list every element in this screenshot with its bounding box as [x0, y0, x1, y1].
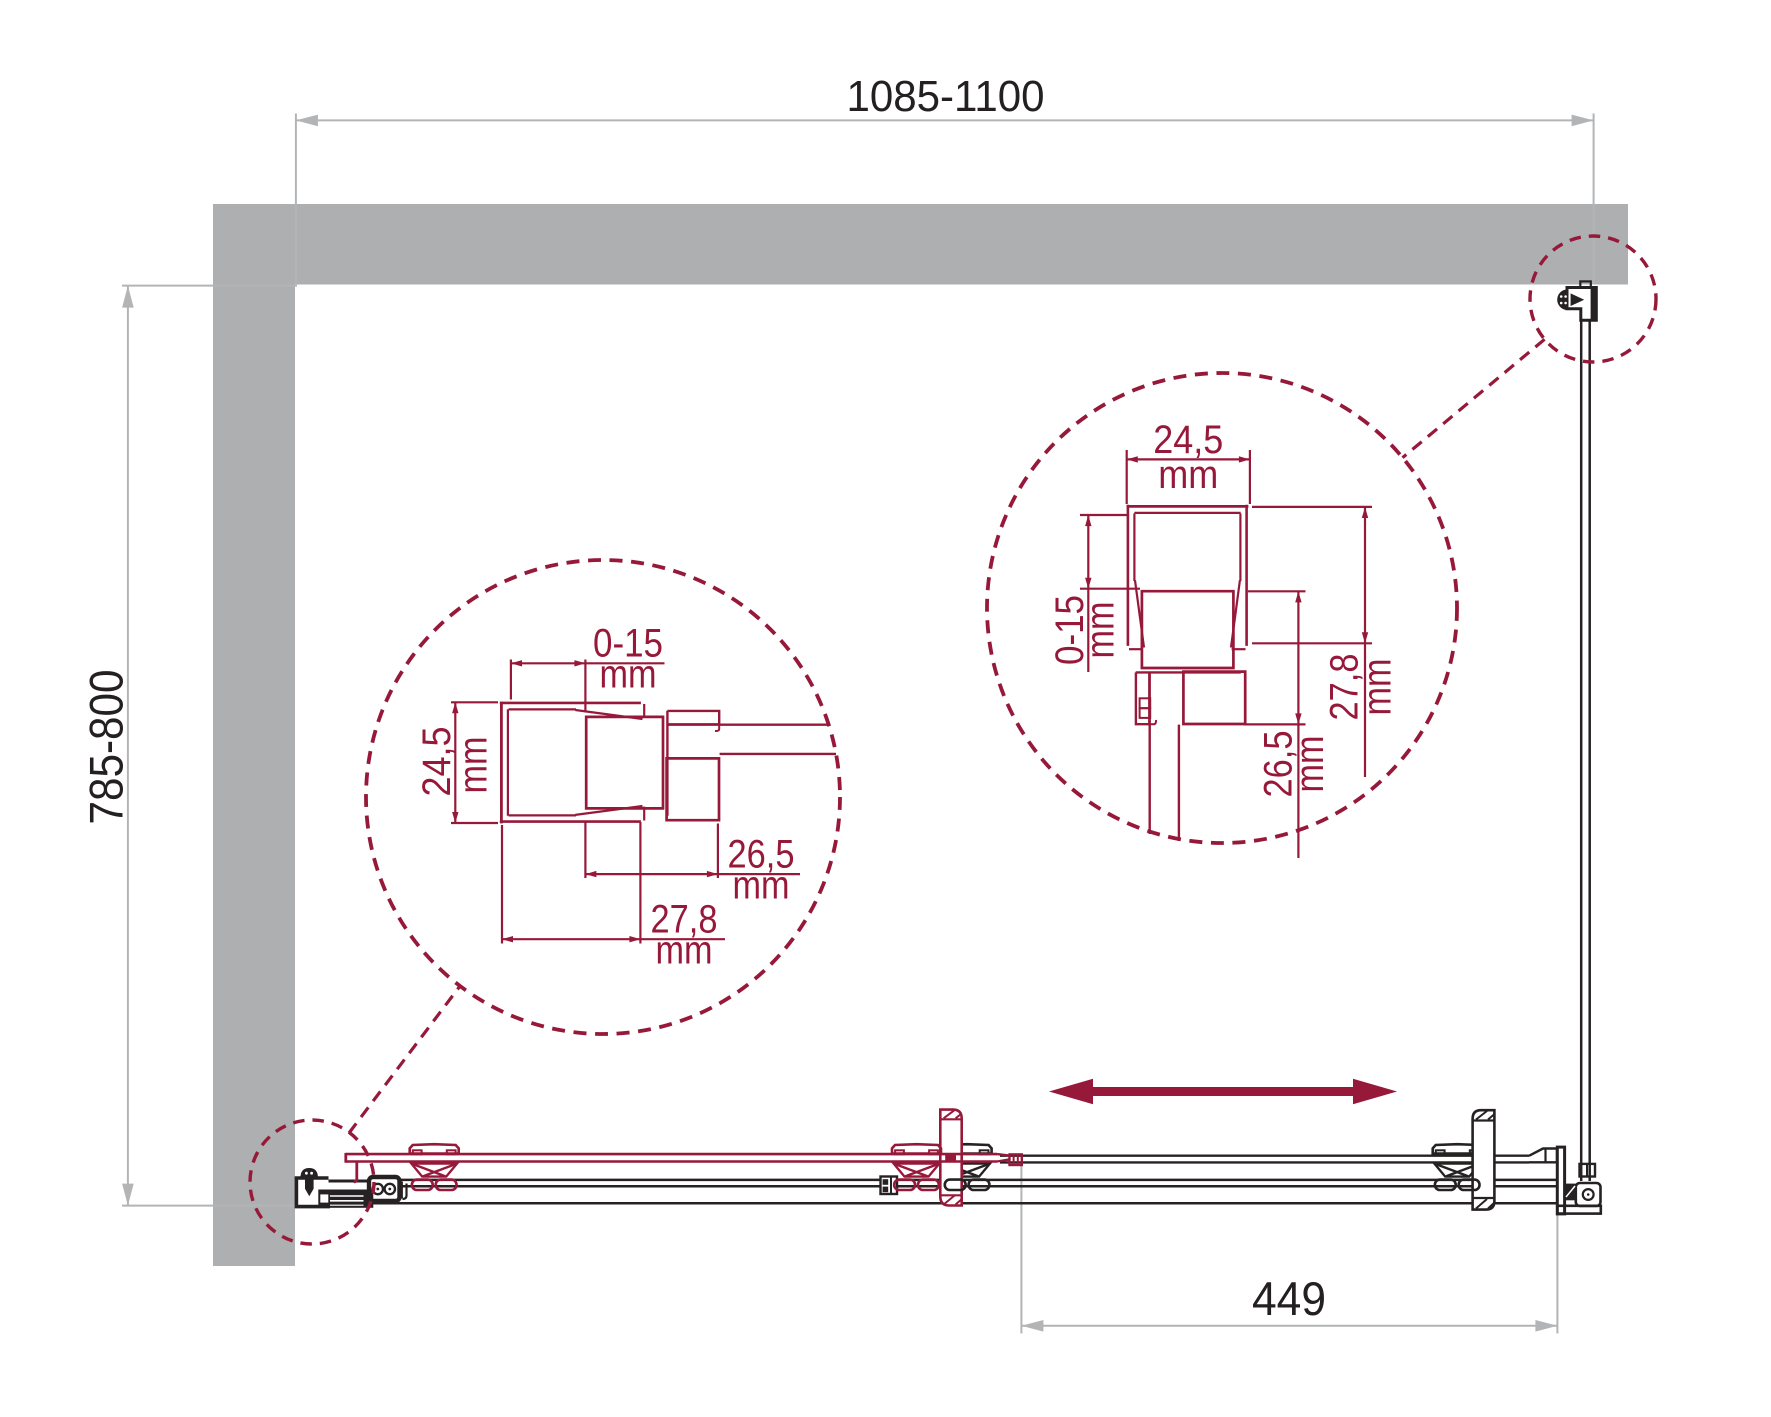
- svg-text:mm: mm: [1288, 736, 1332, 793]
- svg-text:mm: mm: [1158, 453, 1218, 497]
- svg-text:mm: mm: [452, 737, 496, 794]
- svg-text:1085-1100: 1085-1100: [847, 72, 1045, 121]
- svg-text:mm: mm: [600, 653, 657, 697]
- svg-text:mm: mm: [733, 863, 790, 907]
- svg-text:785-800: 785-800: [80, 670, 133, 825]
- svg-text:mm: mm: [1079, 602, 1123, 659]
- svg-text:449: 449: [1252, 1272, 1326, 1325]
- svg-text:mm: mm: [656, 928, 713, 972]
- svg-text:mm: mm: [1356, 659, 1400, 716]
